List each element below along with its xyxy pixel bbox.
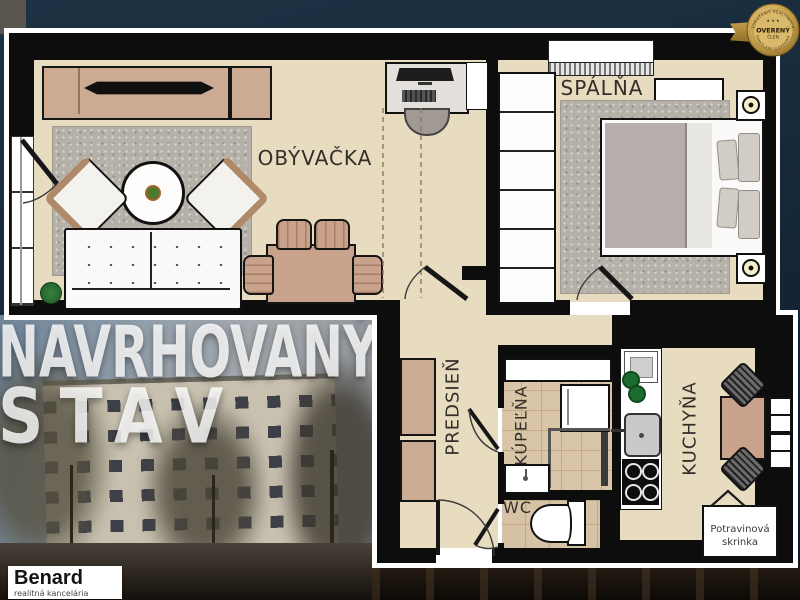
plan-annotations-overlay	[0, 0, 800, 600]
balcony-door-leaf	[22, 140, 57, 184]
badge-stars: ★ ★ ★	[766, 18, 780, 23]
agency-name: Benard	[14, 568, 116, 588]
badge-subtitle: ČLEN	[767, 34, 779, 41]
hall-door-leaf	[425, 267, 467, 299]
real-estate-floorplan-image: { "floorplan": { "rooms": [ {"id": "livi…	[0, 0, 800, 600]
badge-seal: ZDRUŽENIE REALITNÝCH KANCELÁRIÍ SLOVENSK…	[746, 2, 800, 58]
agency-tagline: realitná kancelária	[14, 589, 116, 598]
pantry-cabinet-label: Potravinová skrinka	[702, 505, 778, 558]
agency-logo: Benard realitná kancelária	[8, 566, 122, 599]
balcony-door-arc	[23, 184, 57, 203]
bedroom-door-leaf	[600, 267, 632, 299]
verified-badge: ZDRUŽENIE REALITNÝCH KANCELÁRIÍ SLOVENSK…	[694, 0, 800, 64]
bedroom-door-arc	[577, 267, 600, 300]
pantry-label-text: Potravinová skrinka	[710, 524, 770, 549]
wc-door-arc	[475, 545, 498, 549]
badge-title: OVERENÝ	[756, 26, 790, 35]
hall-door-arc	[405, 267, 425, 299]
